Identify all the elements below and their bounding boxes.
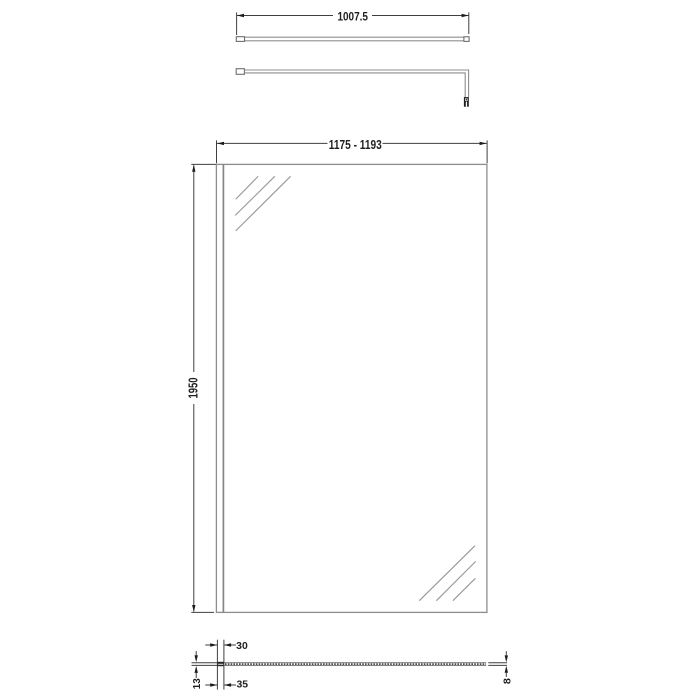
svg-text:1950: 1950 (186, 377, 200, 398)
svg-text:1175 - 1193: 1175 - 1193 (329, 138, 382, 152)
svg-text:13: 13 (192, 678, 203, 689)
svg-text:8: 8 (502, 678, 513, 684)
svg-text:1007.5: 1007.5 (337, 9, 368, 23)
svg-text:30: 30 (236, 641, 248, 652)
svg-text:35: 35 (237, 680, 249, 691)
